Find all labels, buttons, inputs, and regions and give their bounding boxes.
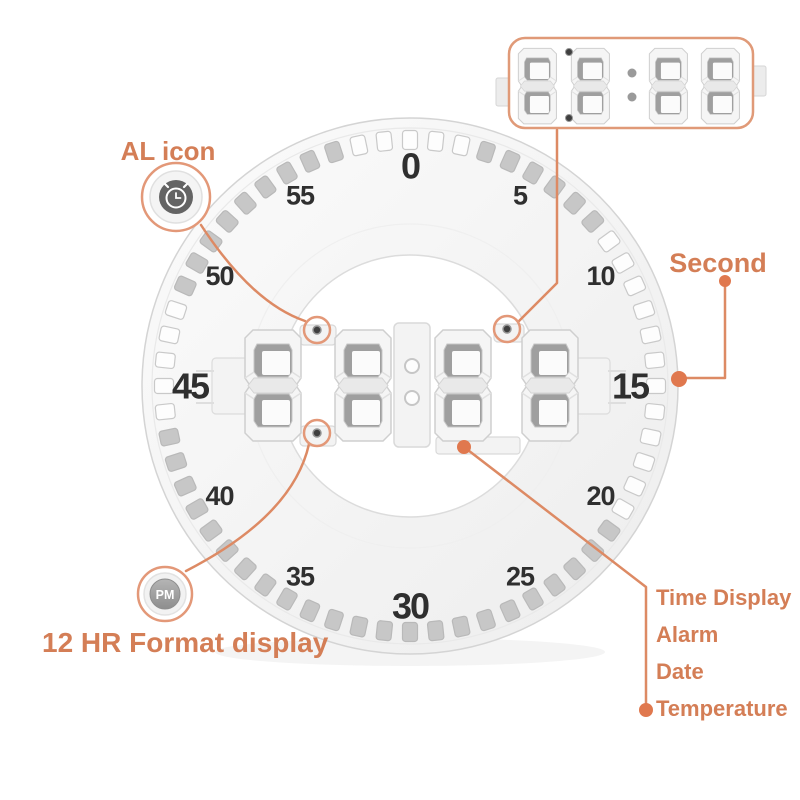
minute-number: 40 [205,481,233,511]
features-end-dot [639,703,653,717]
colon-bracket [394,323,430,447]
minute-tick [155,379,174,394]
minute-tick [376,620,393,640]
minute-tick [427,620,444,640]
minute-tick [452,616,471,638]
minute-number: 35 [286,562,315,592]
al-icon-label: AL icon [121,136,216,166]
minute-number: 30 [392,586,429,627]
seven-segment-digit [518,48,556,123]
feature-list: Time Display Alarm Date Temperature [656,585,792,721]
second-leader-line [687,281,725,378]
feature-temperature: Temperature [656,696,788,721]
minute-tick [350,616,369,638]
format-display-label: 12 HR Format display [42,627,329,658]
minute-number: 20 [586,481,614,511]
colon-dot [628,93,637,102]
minute-tick [376,131,393,151]
product-diagram: 0510152025303540455055 [0,0,800,800]
inset-led-dot-top [566,49,573,56]
seven-segment-digit [522,330,578,441]
feature-alarm: Alarm [656,622,718,647]
al-led-dot [313,326,321,334]
inset-led-dot-bottom [566,115,573,122]
minute-number: 5 [513,181,528,211]
minute-tick [159,326,181,345]
seven-segment-digit [649,48,687,123]
minute-number: 55 [286,181,315,211]
minute-tick [350,135,369,157]
second-led-dot [503,325,511,333]
minute-tick [159,428,181,447]
pm-badge-label: PM [156,588,175,602]
features-start-dot [457,440,471,454]
minute-tick [427,131,444,151]
minute-number: 25 [506,562,535,592]
seven-segment-digit [571,48,609,123]
colon-dot [405,359,419,373]
minute-number: 50 [205,261,233,291]
clock-annotation-diagram: 0510152025303540455055 [0,0,800,800]
seven-segment-digit [335,330,391,441]
second-label: Second [669,248,767,278]
seven-segment-digit [435,330,491,441]
second-ring-dot [671,371,687,387]
feature-date: Date [656,659,704,684]
minute-number: 0 [401,146,420,187]
seven-segment-digit [245,330,301,441]
colon-dot [405,391,419,405]
pm-badge: PM [138,567,192,621]
minute-tick [640,428,662,447]
al-icon-badge [142,163,210,231]
pm-led-dot [313,429,321,437]
feature-time-display: Time Display [656,585,792,610]
minute-number: 10 [586,261,614,291]
minute-tick [647,379,666,394]
display-inset [496,38,766,128]
colon-dot [628,69,637,78]
minute-tick [452,135,471,157]
minute-tick [640,326,662,345]
wall-clock: 0510152025303540455055 [142,118,678,666]
seven-segment-digit [701,48,739,123]
